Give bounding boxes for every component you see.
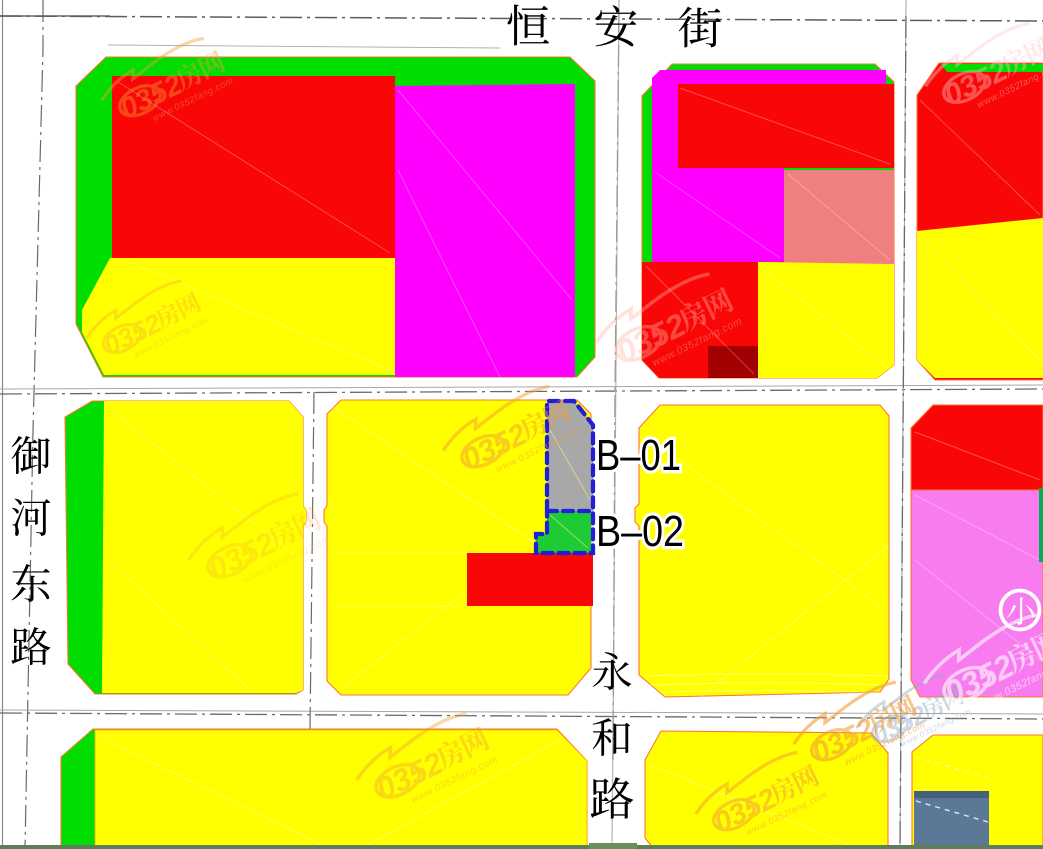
svg-text:B–02: B–02 bbox=[596, 507, 684, 556]
svg-text:B–01: B–01 bbox=[596, 431, 681, 480]
